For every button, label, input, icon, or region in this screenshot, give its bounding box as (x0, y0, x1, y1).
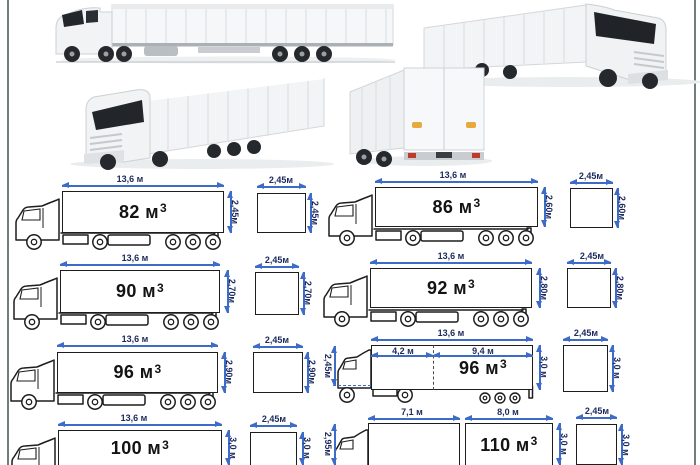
section-height-label: 2,60м (617, 196, 627, 220)
truck-photo-front-left (62, 70, 337, 170)
length-dim-label: 13,6 м (438, 328, 465, 338)
section-width-label: 2,45м (574, 328, 598, 338)
volume-value: 92 м (427, 278, 467, 299)
length-dim-line (371, 339, 533, 341)
volume-value: 96 м (459, 358, 499, 379)
length-dim-label: 13,6 м (117, 174, 144, 184)
height-dim-label: 2,90м (224, 360, 234, 384)
length-dim-line (370, 262, 532, 264)
section-width-dim-line (257, 186, 306, 188)
volume-label-86m3: 86 м3 (375, 187, 538, 227)
length-dim-line (62, 185, 224, 187)
truck-photo-side (48, 2, 398, 64)
cross-section-86m3 (570, 188, 613, 228)
height-dim-label: 2,45м (230, 200, 240, 224)
height-dim-label: 3,0 м (228, 437, 238, 459)
length-dim-label: 13,6 м (438, 251, 465, 261)
segment2-dim-label: 9,4 м (472, 346, 494, 356)
cargo-box-110m3-front (368, 423, 460, 465)
volume-label-92m3: 92 м3 (370, 268, 532, 308)
cross-section-92m3 (567, 268, 611, 308)
segment2-dim-label: 8,0 м (497, 407, 519, 417)
extension-line-dashed (333, 385, 371, 386)
volume-label-82m3: 82 м3 (62, 191, 224, 233)
section-width-dim-line (255, 266, 299, 268)
truck-volume-infographic: 82 м3 13,6 м 2,45м 2,45м 2,45м 86 м3 13,… (0, 0, 700, 465)
front-height-dim-label: 2,45м (323, 354, 333, 378)
section-width-label: 2,45м (580, 251, 604, 261)
segment1-dim-label: 4,2 м (392, 346, 414, 356)
section-width-label: 2,45м (585, 406, 609, 416)
section-height-label: 2,70м (303, 281, 313, 305)
volume-value: 100 м (111, 438, 161, 459)
section-width-dim-line (570, 182, 613, 184)
segment1-dim-line (368, 418, 460, 420)
section-width-dim-line (253, 346, 303, 348)
length-dim-label: 13,6 м (122, 334, 149, 344)
height-dim-label: 2,70м (227, 279, 237, 303)
cross-section-96m3-right (563, 345, 608, 392)
height-dim-label: 3,0 м (559, 433, 569, 455)
section-width-dim-line (563, 339, 608, 341)
section-width-dim-line (250, 425, 297, 427)
section-width-label: 2,45м (262, 414, 286, 424)
section-height-label: 3,0 м (612, 357, 622, 379)
section-width-label: 2,45м (579, 171, 603, 181)
height-dim-label: 2,60м (544, 195, 554, 219)
length-dim-line (375, 181, 538, 183)
volume-value: 82 м (119, 202, 159, 223)
front-height-dim-label: 2,95м (323, 432, 333, 456)
front-height-dim-line (334, 346, 336, 386)
height-dim-label: 2,80м (539, 276, 549, 300)
front-height-dim-line (334, 424, 336, 465)
section-height-label: 3,0 м (621, 434, 631, 456)
cross-section-110m3 (576, 424, 617, 465)
truck-photo-rear (346, 62, 496, 167)
volume-label-110m3: 110 м3 (465, 425, 553, 465)
volume-label-100m3: 100 м3 (58, 432, 222, 465)
volume-value: 110 м (480, 435, 529, 456)
section-width-label: 2,45м (265, 335, 289, 345)
volume-label-90m3: 90 м3 (60, 270, 220, 313)
height-dim-label: 3,0 м (539, 356, 549, 378)
length-dim-line (57, 345, 218, 347)
cross-section-90m3 (255, 272, 299, 315)
section-height-label: 2,90м (307, 360, 317, 384)
volume-value: 90 м (116, 281, 156, 302)
length-dim-line (58, 424, 222, 426)
length-dim-label: 13,6 м (440, 170, 467, 180)
cross-section-100m3 (250, 432, 297, 465)
length-dim-label: 13,6 м (122, 253, 149, 263)
section-height-label: 3,0 м (302, 437, 312, 459)
volume-value: 96 м (113, 362, 153, 383)
section-width-label: 2,45м (269, 175, 293, 185)
section-height-label: 2,45м (310, 201, 320, 225)
section-width-dim-line (576, 417, 617, 419)
length-dim-line (60, 264, 220, 266)
volume-value: 86 м (432, 197, 472, 218)
cross-section-96m3-left (253, 352, 303, 393)
section-height-label: 2,80м (615, 276, 625, 300)
section-width-dim-line (567, 262, 611, 264)
section-width-label: 2,45м (265, 255, 289, 265)
segment2-dim-line (465, 418, 553, 420)
cross-section-82m3 (257, 193, 306, 233)
length-dim-label: 13,6 м (121, 413, 148, 423)
segment1-dim-label: 7,1 м (401, 407, 423, 417)
volume-label-96m3-left: 96 м3 (57, 352, 218, 393)
